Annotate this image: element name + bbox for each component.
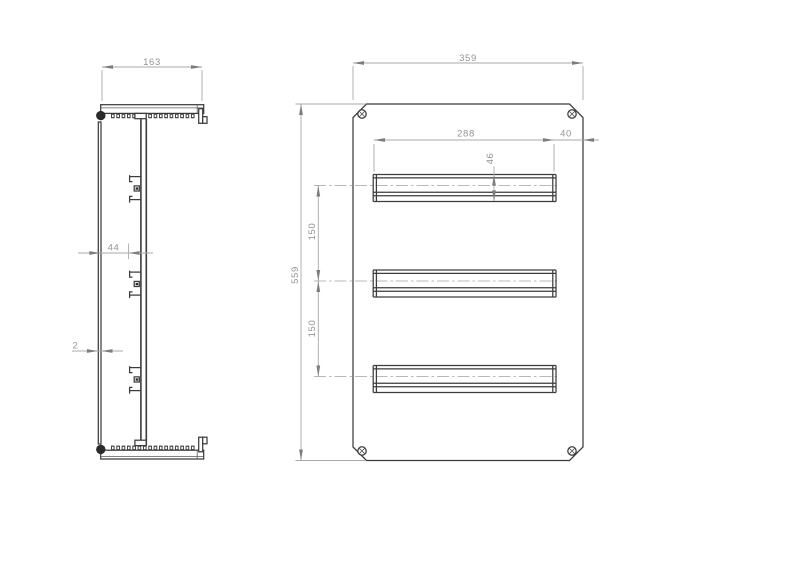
arrowhead bbox=[353, 61, 364, 65]
mounting-plate-section bbox=[135, 113, 146, 445]
arrowhead bbox=[129, 251, 140, 255]
hat-center-dot bbox=[136, 378, 139, 380]
rail-bar bbox=[101, 450, 204, 459]
corner-screw-top-right bbox=[568, 110, 576, 118]
corner-screw-bottom-left bbox=[358, 447, 366, 455]
arrowhead bbox=[87, 349, 98, 353]
front-view: 359 288 40 46 bbox=[290, 53, 599, 461]
dim-label-rail-depth: 44 bbox=[108, 243, 120, 254]
hat-center-dot bbox=[136, 283, 139, 285]
arrowhead bbox=[316, 270, 320, 281]
arrowhead bbox=[316, 186, 320, 197]
arrowhead bbox=[583, 138, 594, 142]
plate-top-stub bbox=[135, 113, 146, 118]
dim-label-rail-spacing-2: 150 bbox=[307, 320, 318, 338]
arrowhead bbox=[102, 349, 113, 353]
rail-bar bbox=[101, 105, 204, 114]
dim-label-rail-length: 288 bbox=[457, 129, 475, 140]
top-frame-rail bbox=[96, 105, 207, 124]
arrowhead bbox=[299, 450, 303, 461]
drawing-canvas: 163 bbox=[0, 0, 800, 566]
din-rail-section-1 bbox=[130, 175, 141, 203]
technical-drawing: 163 bbox=[0, 0, 800, 566]
dim-panel-thickness: 2 bbox=[72, 341, 123, 353]
din-rail-section-2 bbox=[130, 271, 141, 299]
dim-label-front-height: 559 bbox=[290, 266, 301, 284]
bottom-frame-rail bbox=[96, 437, 207, 459]
arrowhead bbox=[191, 65, 202, 69]
end-bracket-foot bbox=[203, 117, 207, 124]
dim-label-side-width: 163 bbox=[143, 57, 161, 68]
dim-label-front-width: 359 bbox=[459, 53, 477, 64]
dim-front-width: 359 bbox=[353, 53, 583, 100]
front-panel-section bbox=[98, 122, 101, 444]
dim-side-width: 163 bbox=[102, 57, 202, 101]
dim-label-rail-height: 46 bbox=[485, 153, 496, 165]
dim-rail-depth: 44 bbox=[78, 243, 153, 260]
dim-label-rail-edge-offset: 40 bbox=[560, 129, 572, 140]
mounting-plate-outline bbox=[353, 104, 583, 461]
corner-screw-bottom-right bbox=[568, 447, 576, 455]
dim-label-rail-spacing-1: 150 bbox=[307, 223, 318, 241]
end-bracket-foot bbox=[203, 437, 207, 444]
arrowhead bbox=[572, 61, 583, 65]
plate-bottom-stub bbox=[135, 440, 146, 445]
corner-screw-top-left bbox=[358, 110, 366, 118]
din-rail-section-3 bbox=[130, 366, 141, 394]
arrowhead bbox=[102, 65, 113, 69]
arrowhead bbox=[316, 281, 320, 292]
corner-bolt bbox=[96, 445, 105, 454]
hat-center-dot bbox=[136, 187, 139, 189]
dim-label-panel-thickness: 2 bbox=[73, 341, 79, 352]
corner-bolt bbox=[96, 111, 105, 120]
arrowhead bbox=[316, 366, 320, 377]
dim-rail-spacing: 150 150 bbox=[307, 186, 320, 377]
side-view: 163 bbox=[72, 57, 207, 459]
arrowhead bbox=[299, 104, 303, 115]
